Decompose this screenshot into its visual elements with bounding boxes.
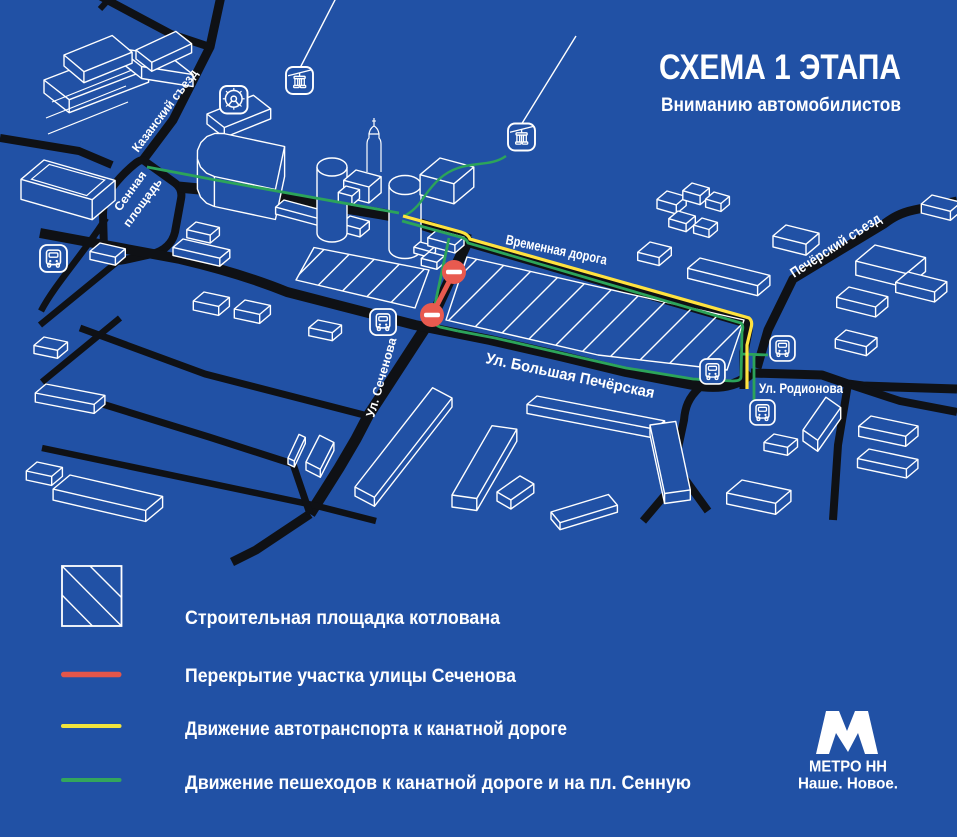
svg-text:Движение пешеходов к канатной: Движение пешеходов к канатной дороге и н…: [185, 773, 691, 794]
svg-text:Строительная площадка котлован: Строительная площадка котлована: [185, 608, 500, 629]
svg-text:Наше. Новое.: Наше. Новое.: [798, 776, 898, 793]
svg-text:Ул. Родионова: Ул. Родионова: [759, 381, 843, 396]
svg-text:СХЕМА 1 ЭТАПА: СХЕМА 1 ЭТАПА: [659, 48, 901, 87]
svg-text:Движение автотранспорта к кана: Движение автотранспорта к канатной дорог…: [185, 719, 567, 740]
svg-text:МЕТРО НН: МЕТРО НН: [809, 759, 887, 776]
svg-text:Вниманию автомобилистов: Вниманию автомобилистов: [661, 95, 901, 116]
svg-text:Перекрытие участка улицы Сечен: Перекрытие участка улицы Сеченова: [185, 666, 516, 687]
